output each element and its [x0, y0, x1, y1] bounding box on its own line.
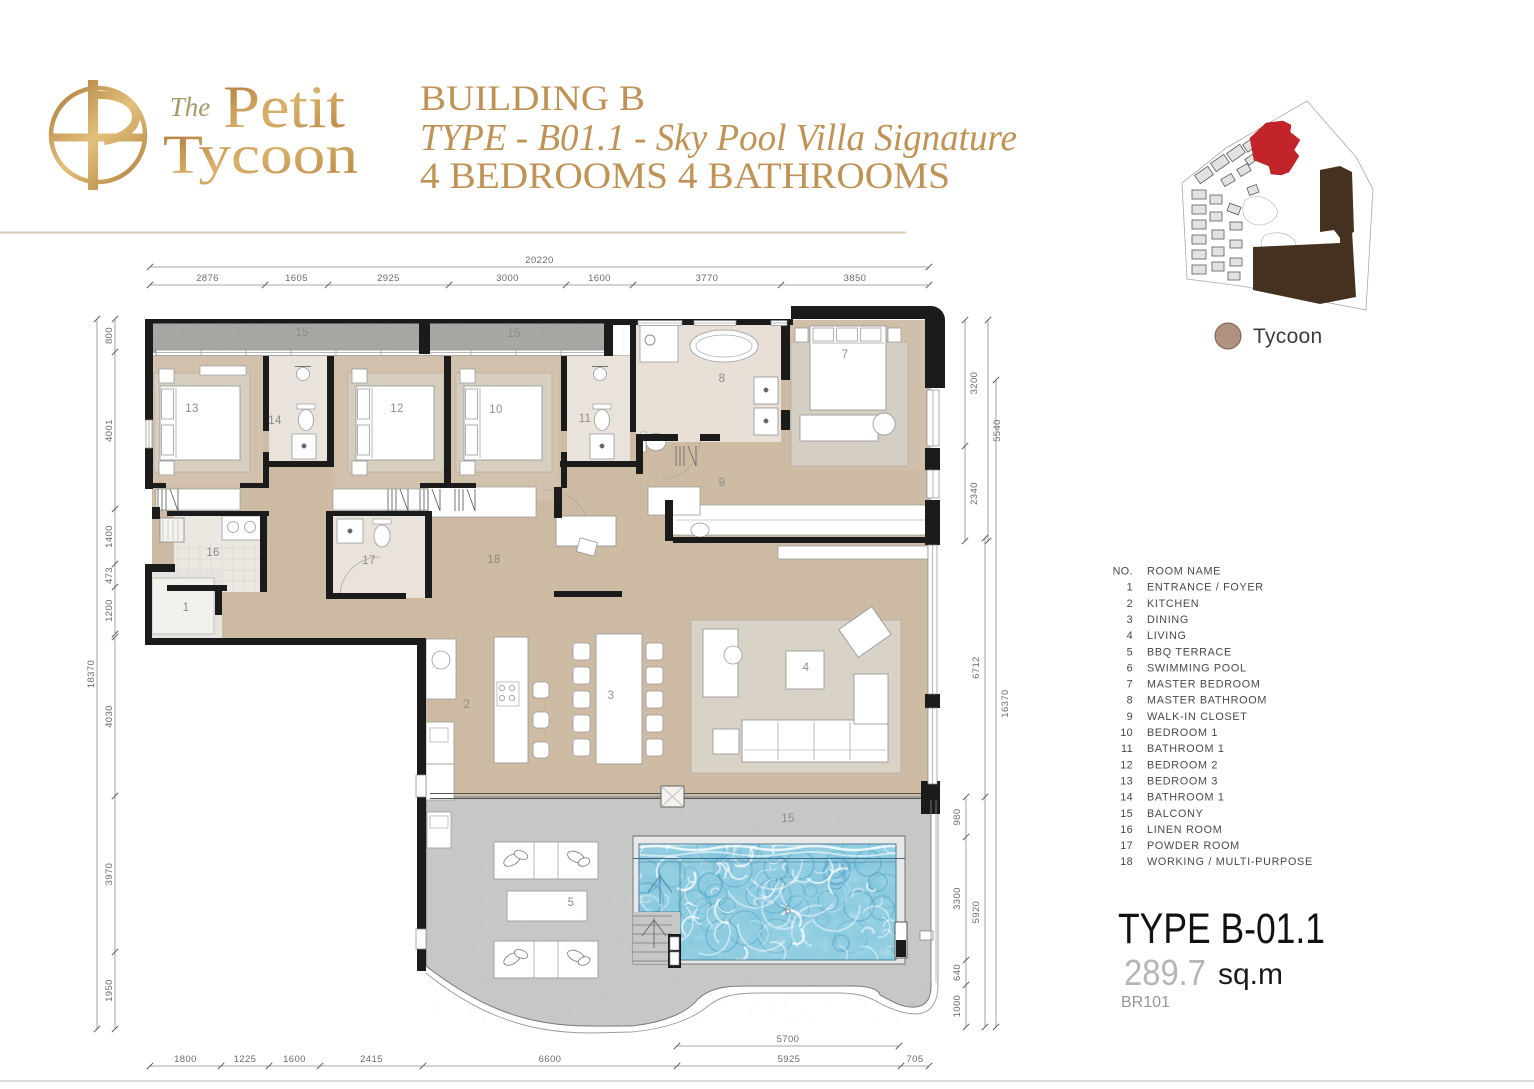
- svg-text:1400: 1400: [104, 525, 115, 548]
- svg-text:5540: 5540: [992, 419, 1003, 442]
- svg-text:20220: 20220: [525, 255, 553, 266]
- svg-text:BATHROOM 1: BATHROOM 1: [1147, 743, 1225, 755]
- svg-text:WORKING / MULTI-PURPOSE: WORKING / MULTI-PURPOSE: [1147, 856, 1313, 868]
- svg-text:12: 12: [1120, 759, 1133, 771]
- svg-text:6: 6: [1127, 662, 1133, 674]
- svg-text:9: 9: [1127, 711, 1133, 723]
- svg-text:1: 1: [1127, 582, 1133, 594]
- svg-text:8: 8: [1127, 695, 1133, 707]
- svg-text:sq.m: sq.m: [1218, 958, 1283, 991]
- svg-text:8: 8: [719, 373, 726, 385]
- svg-text:5700: 5700: [777, 1034, 800, 1045]
- svg-text:2: 2: [1127, 598, 1133, 610]
- svg-text:6: 6: [785, 905, 792, 917]
- svg-text:BBQ TERRACE: BBQ TERRACE: [1147, 646, 1232, 658]
- svg-text:2415: 2415: [360, 1054, 383, 1065]
- svg-text:5: 5: [568, 897, 575, 909]
- svg-text:4: 4: [803, 662, 810, 674]
- svg-text:5925: 5925: [778, 1054, 801, 1065]
- svg-text:16: 16: [1120, 824, 1133, 836]
- svg-text:473: 473: [104, 567, 115, 584]
- svg-text:1: 1: [183, 602, 190, 614]
- svg-text:BEDROOM 2: BEDROOM 2: [1147, 759, 1218, 771]
- svg-text:289.7: 289.7: [1124, 952, 1206, 993]
- svg-text:15: 15: [1120, 808, 1133, 820]
- svg-text:14: 14: [268, 415, 282, 427]
- svg-text:3: 3: [1127, 614, 1133, 626]
- svg-text:BALCONY: BALCONY: [1147, 808, 1204, 820]
- svg-text:16370: 16370: [1000, 689, 1011, 717]
- svg-text:980: 980: [952, 808, 963, 825]
- svg-text:1605: 1605: [285, 273, 308, 284]
- svg-text:1950: 1950: [104, 979, 115, 1002]
- svg-text:705: 705: [906, 1054, 923, 1065]
- svg-text:3300: 3300: [952, 887, 963, 910]
- svg-text:1800: 1800: [174, 1054, 197, 1065]
- svg-text:17: 17: [362, 555, 375, 567]
- svg-text:5920: 5920: [971, 901, 982, 924]
- svg-text:7: 7: [1127, 679, 1133, 691]
- svg-text:6712: 6712: [971, 656, 982, 679]
- svg-text:1600: 1600: [588, 273, 611, 284]
- svg-text:2: 2: [464, 699, 471, 711]
- svg-text:11: 11: [1121, 743, 1133, 755]
- svg-text:POWDER ROOM: POWDER ROOM: [1147, 840, 1240, 852]
- svg-text:2340: 2340: [969, 482, 980, 505]
- svg-text:6600: 6600: [539, 1054, 562, 1065]
- svg-text:BEDROOM 1: BEDROOM 1: [1147, 727, 1218, 739]
- svg-text:15: 15: [781, 813, 794, 825]
- svg-text:1225: 1225: [234, 1054, 257, 1065]
- svg-text:18370: 18370: [86, 660, 97, 688]
- svg-text:640: 640: [952, 964, 963, 981]
- svg-text:1600: 1600: [283, 1054, 306, 1065]
- svg-text:DINING: DINING: [1147, 614, 1189, 626]
- svg-text:13: 13: [1120, 775, 1133, 787]
- svg-text:1200: 1200: [104, 599, 115, 622]
- svg-text:13: 13: [185, 403, 198, 415]
- svg-text:14: 14: [1120, 792, 1133, 804]
- svg-text:MASTER BATHROOM: MASTER BATHROOM: [1147, 695, 1267, 707]
- svg-text:WALK-IN CLOSET: WALK-IN CLOSET: [1147, 711, 1248, 723]
- svg-text:LINEN ROOM: LINEN ROOM: [1147, 824, 1222, 836]
- svg-text:16: 16: [206, 547, 219, 559]
- svg-text:4: 4: [1127, 630, 1133, 642]
- svg-text:TYPE B-01.1: TYPE B-01.1: [1118, 905, 1325, 953]
- svg-text:18: 18: [487, 554, 500, 566]
- svg-text:BR101: BR101: [1121, 994, 1170, 1011]
- svg-text:7: 7: [842, 349, 849, 361]
- svg-text:3970: 3970: [104, 863, 115, 886]
- svg-text:The: The: [170, 92, 211, 122]
- svg-text:KITCHEN: KITCHEN: [1147, 598, 1199, 610]
- svg-text:Tycoon: Tycoon: [1253, 325, 1323, 348]
- svg-text:800: 800: [104, 327, 115, 344]
- svg-text:10: 10: [489, 404, 502, 416]
- svg-text:ENTRANCE / FOYER: ENTRANCE / FOYER: [1147, 582, 1264, 594]
- svg-text:12: 12: [390, 403, 403, 415]
- svg-text:2925: 2925: [377, 273, 400, 284]
- svg-text:3850: 3850: [844, 273, 867, 284]
- svg-text:SWIMMING POOL: SWIMMING POOL: [1147, 662, 1247, 674]
- svg-text:3000: 3000: [496, 273, 519, 284]
- svg-text:4030: 4030: [104, 705, 115, 728]
- svg-text:17: 17: [1120, 840, 1133, 852]
- svg-text:BUILDING B: BUILDING B: [420, 78, 645, 118]
- svg-text:BATHROOM 1: BATHROOM 1: [1147, 792, 1225, 804]
- svg-text:2876: 2876: [196, 273, 219, 284]
- svg-text:3770: 3770: [696, 273, 719, 284]
- svg-text:3: 3: [608, 690, 615, 702]
- svg-text:ROOM NAME: ROOM NAME: [1147, 566, 1221, 578]
- svg-text:BEDROOM 3: BEDROOM 3: [1147, 775, 1218, 787]
- svg-text:5: 5: [1127, 646, 1133, 658]
- svg-text:NO.: NO.: [1113, 566, 1133, 578]
- svg-text:TYPE - B01.1 - Sky Pool Villa: TYPE - B01.1 - Sky Pool Villa Signature: [420, 117, 1017, 159]
- svg-text:Tycoon: Tycoon: [163, 124, 358, 185]
- svg-text:4001: 4001: [104, 419, 115, 442]
- svg-text:10: 10: [1120, 727, 1133, 739]
- svg-text:4 BEDROOMS 4 BATHROOMS: 4 BEDROOMS 4 BATHROOMS: [420, 156, 950, 197]
- svg-text:11: 11: [579, 413, 592, 425]
- svg-text:3200: 3200: [969, 372, 980, 395]
- svg-text:LIVING: LIVING: [1147, 630, 1187, 642]
- svg-text:15: 15: [507, 328, 520, 340]
- svg-text:MASTER BEDROOM: MASTER BEDROOM: [1147, 679, 1261, 691]
- svg-text:9: 9: [719, 477, 726, 489]
- svg-text:15: 15: [295, 327, 308, 339]
- svg-text:1000: 1000: [952, 995, 963, 1018]
- svg-text:18: 18: [1120, 856, 1133, 868]
